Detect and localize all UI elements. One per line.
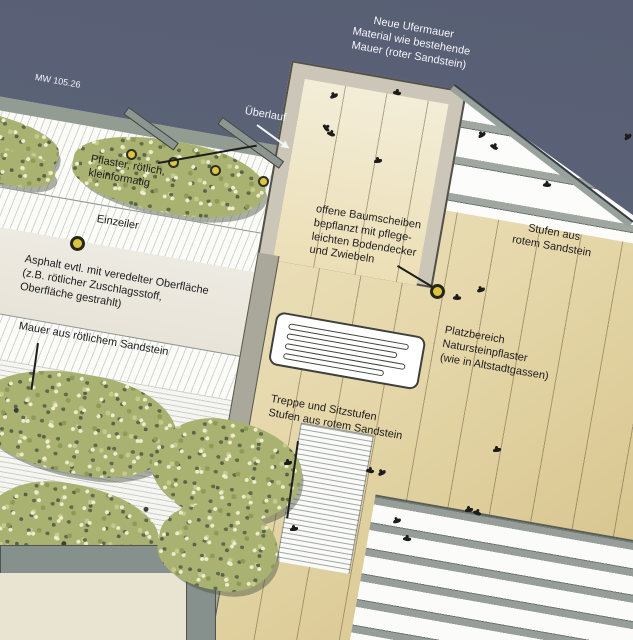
person-figure [477,287,486,292]
tree-symbol [430,284,445,299]
person-figure [403,536,412,542]
person-figure [366,468,375,474]
label-line: Mauer aus rötlichem Sandstein [18,320,170,360]
person-figure [478,131,487,138]
leader-line [397,265,432,287]
label-pflaster: Pflaster, rötlich, kleinformatig [87,153,166,193]
bench-symbol [268,311,427,391]
person-figure [453,295,462,300]
label-line: MW 105.26 [34,72,81,91]
site-plan: MW 105.26 Neue Ufermauer Material wie be… [0,0,633,640]
person-figure [378,470,387,476]
shore-marker-dot [210,165,221,176]
leader-line [30,343,39,390]
leader-line [286,441,299,519]
overflow-arrow [256,124,286,147]
label-new-quay-wall: Neue Ufermauer Material wie bestehende M… [329,8,494,76]
person-figure [327,130,336,137]
person-figure [393,518,402,523]
person-figure [374,159,382,163]
river-steps-edge-wall [450,84,633,227]
person-figure [624,133,633,140]
shore-marker-dot [258,176,269,187]
person-figure [393,90,402,96]
label-overflow: Überlauf [244,105,287,126]
label-line: Einzeiler [96,213,140,234]
person-figure [473,509,482,516]
person-figure [330,93,339,99]
person-figure [290,527,298,531]
person-figure [284,461,292,465]
tree-symbol [70,236,85,251]
label-treppe: Treppe und Sitzstufen Stufen aus rotem S… [267,393,405,444]
shore-ramp [123,107,178,151]
annotation-layer: MW 105.26 Neue Ufermauer Material wie be… [0,0,633,640]
shore-ramp [217,117,284,169]
label-stufen: Stufen aus rotem Sandstein [495,217,610,264]
label-mauer: Mauer aus rötlichem Sandstein [18,320,170,360]
label-asphalt: Asphalt evtl. mit veredelter Oberfläche … [19,253,210,326]
label-line: Überlauf [244,105,287,126]
label-platzbereich: Platzbereich Natursteinpflaster (wie in … [439,324,555,384]
person-figure [490,143,499,151]
label-water-level: MW 105.26 [34,72,81,91]
label-einzeiler: Einzeiler [96,213,140,234]
person-figure [493,448,501,452]
person-figure [543,182,552,187]
label-baumscheiben: offene Baumscheiben bepflanzt mit pflege… [308,203,422,274]
